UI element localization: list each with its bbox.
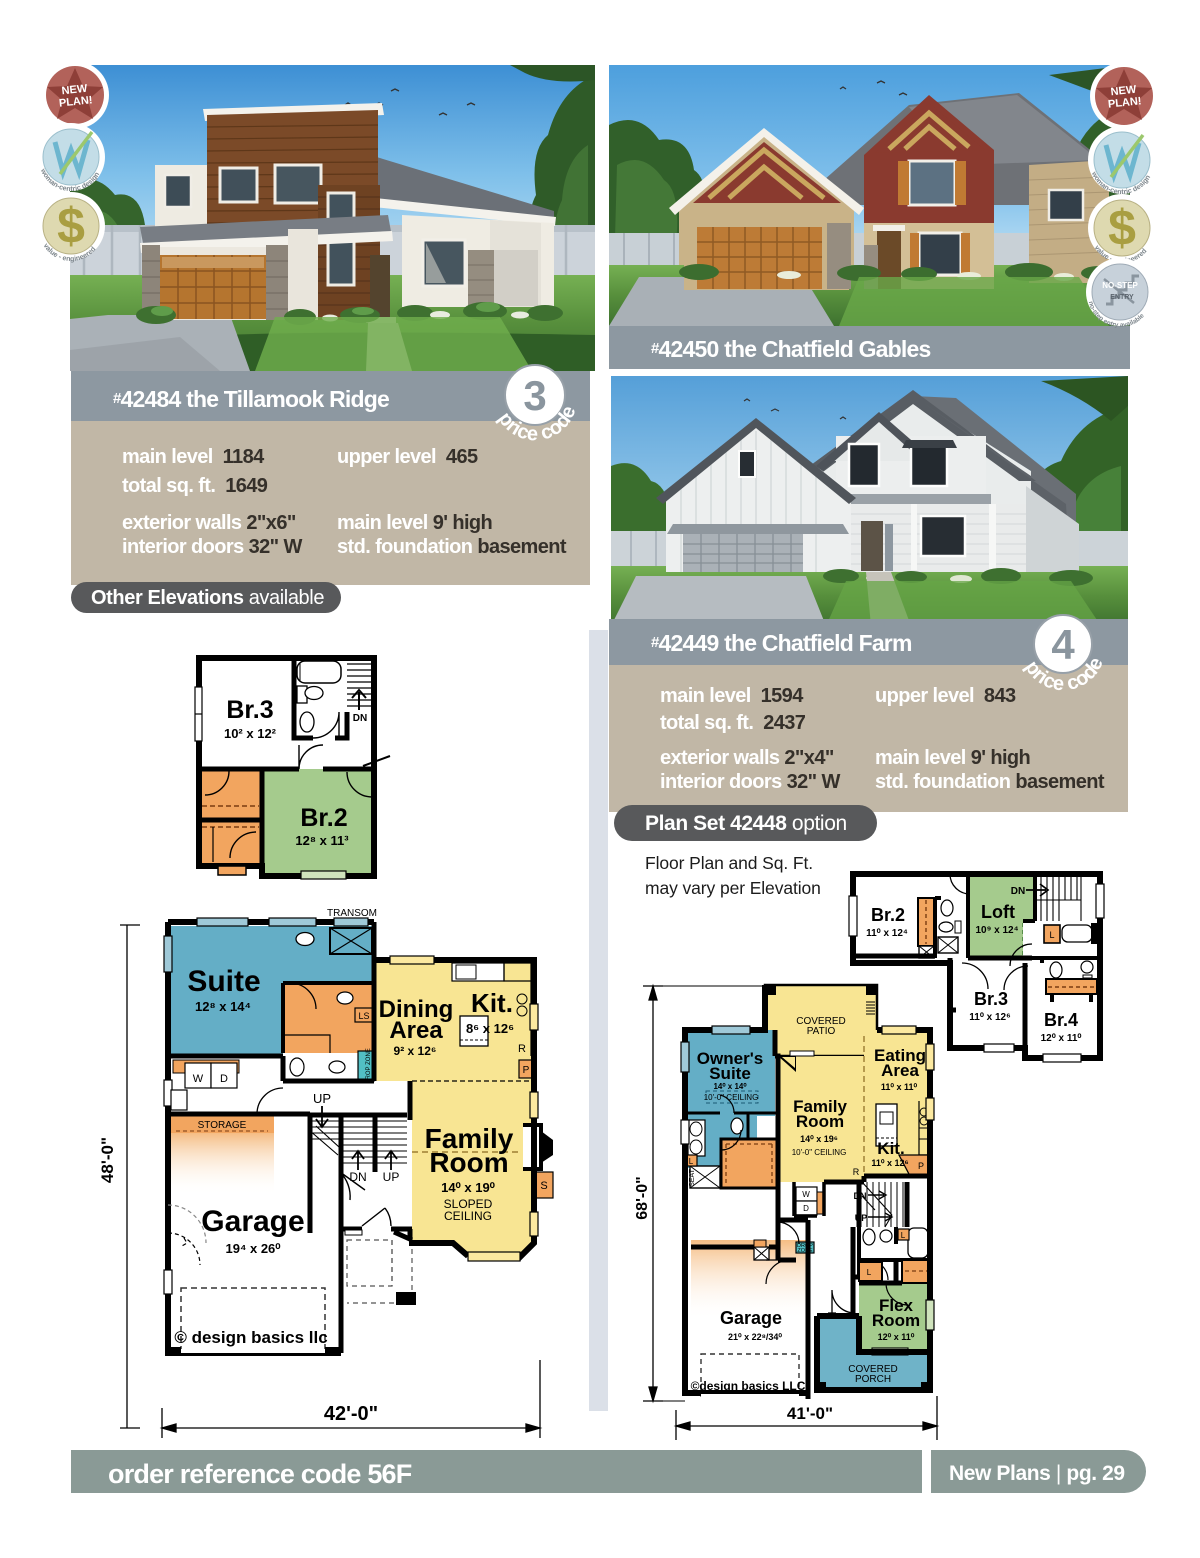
svg-text:Loft: Loft — [981, 902, 1015, 922]
svg-text:8⁶ x 12⁶: 8⁶ x 12⁶ — [466, 1021, 514, 1036]
svg-text:Br.2: Br.2 — [871, 905, 905, 925]
svg-text:UP: UP — [383, 1170, 400, 1184]
svg-text:Room: Room — [796, 1112, 844, 1131]
svg-text:3: 3 — [523, 372, 546, 419]
svg-text:CEILING: CEILING — [444, 1209, 492, 1223]
svg-text:LS: LS — [358, 1011, 369, 1021]
svg-text:4: 4 — [1051, 621, 1075, 668]
svg-text:19⁴ x 26⁰: 19⁴ x 26⁰ — [225, 1241, 281, 1256]
svg-text:S: S — [540, 1180, 547, 1192]
svg-text:TRANSOM: TRANSOM — [327, 908, 377, 919]
svg-text:Area: Area — [881, 1061, 919, 1080]
svg-text:Garage: Garage — [201, 1205, 304, 1238]
svg-text:© design basics llc: © design basics llc — [174, 1328, 327, 1347]
svg-text:W: W — [193, 1073, 204, 1085]
svg-text:12⁰ x 11⁰: 12⁰ x 11⁰ — [1041, 1033, 1082, 1044]
svg-text:10⁹ x 12⁴: 10⁹ x 12⁴ — [975, 925, 1018, 936]
svg-text:©design basics LLC: ©design basics LLC — [691, 1379, 806, 1393]
svg-text:42'-0": 42'-0" — [324, 1403, 378, 1425]
svg-text:Br.3: Br.3 — [974, 989, 1008, 1009]
svg-text:10² x 12²: 10² x 12² — [224, 726, 277, 741]
svg-text:Suite: Suite — [187, 965, 260, 998]
svg-text:Br.4: Br.4 — [1044, 1010, 1078, 1030]
svg-text:41'-0": 41'-0" — [787, 1404, 833, 1423]
svg-text:DN: DN — [353, 713, 367, 724]
svg-text:$: $ — [1108, 200, 1136, 256]
svg-text:R: R — [853, 1167, 860, 1177]
svg-text:9² x 12⁶: 9² x 12⁶ — [394, 1044, 437, 1058]
svg-text:12⁰ x 11⁰: 12⁰ x 11⁰ — [878, 1332, 915, 1342]
svg-text:PATIO: PATIO — [807, 1026, 836, 1037]
svg-text:14⁰ x 19⁶: 14⁰ x 19⁶ — [800, 1134, 838, 1144]
svg-text:10'-0" CEILING: 10'-0" CEILING — [704, 1093, 759, 1102]
svg-text:L: L — [689, 1157, 694, 1166]
svg-text:DN: DN — [1011, 886, 1025, 897]
svg-text:Suite: Suite — [709, 1064, 751, 1083]
svg-text:Garage: Garage — [720, 1308, 782, 1328]
svg-text:14⁰ x 14⁰: 14⁰ x 14⁰ — [713, 1082, 747, 1091]
svg-text:P: P — [918, 1161, 924, 1171]
svg-text:10'-0" CEILING: 10'-0" CEILING — [792, 1148, 847, 1157]
svg-text:Area: Area — [389, 1017, 443, 1044]
svg-text:12⁸ x 14⁴: 12⁸ x 14⁴ — [195, 999, 251, 1014]
svg-text:Br.2: Br.2 — [300, 804, 347, 832]
svg-text:11⁰ x 12⁶: 11⁰ x 12⁶ — [969, 1012, 1010, 1023]
svg-text:Kit.: Kit. — [877, 1139, 904, 1158]
svg-text:L: L — [867, 1268, 872, 1277]
svg-text:D: D — [220, 1073, 228, 1085]
svg-text:ENTRY: ENTRY — [1110, 294, 1134, 301]
svg-text:L: L — [1049, 930, 1054, 940]
svg-text:21⁰ x 22⁸/34⁰: 21⁰ x 22⁸/34⁰ — [728, 1332, 782, 1342]
svg-text:R: R — [518, 1043, 526, 1055]
svg-text:48'-0": 48'-0" — [98, 1137, 117, 1183]
svg-text:68'-0": 68'-0" — [634, 1176, 651, 1219]
svg-text:NO-STEP: NO-STEP — [1102, 281, 1138, 290]
svg-text:W: W — [802, 1190, 810, 1199]
svg-text:L: L — [901, 1231, 906, 1240]
svg-text:14⁰ x 19⁰: 14⁰ x 19⁰ — [441, 1180, 496, 1195]
svg-text:12⁸ x 11³: 12⁸ x 11³ — [295, 833, 349, 848]
svg-text:P: P — [523, 1065, 530, 1076]
svg-text:DN: DN — [349, 1170, 366, 1184]
svg-text:Br.3: Br.3 — [226, 696, 273, 724]
svg-text:UP: UP — [313, 1091, 331, 1106]
svg-text:11⁰ x 12⁴: 11⁰ x 12⁴ — [866, 928, 908, 939]
svg-text:Kit.: Kit. — [471, 988, 513, 1018]
svg-text:SEAT: SEAT — [689, 1168, 696, 1186]
svg-text:Room: Room — [872, 1311, 920, 1330]
svg-text:$: $ — [57, 198, 85, 254]
svg-text:ZONE: ZONE — [797, 1248, 813, 1254]
svg-text:DROP ZONE: DROP ZONE — [366, 1048, 372, 1084]
svg-text:11⁰ x 11⁰: 11⁰ x 11⁰ — [881, 1082, 918, 1092]
svg-text:Room: Room — [429, 1147, 508, 1178]
svg-text:11⁰ x 12⁶: 11⁰ x 12⁶ — [871, 1158, 908, 1168]
svg-text:PORCH: PORCH — [855, 1374, 891, 1385]
svg-text:D: D — [803, 1204, 809, 1213]
svg-text:STORAGE: STORAGE — [198, 1120, 247, 1131]
